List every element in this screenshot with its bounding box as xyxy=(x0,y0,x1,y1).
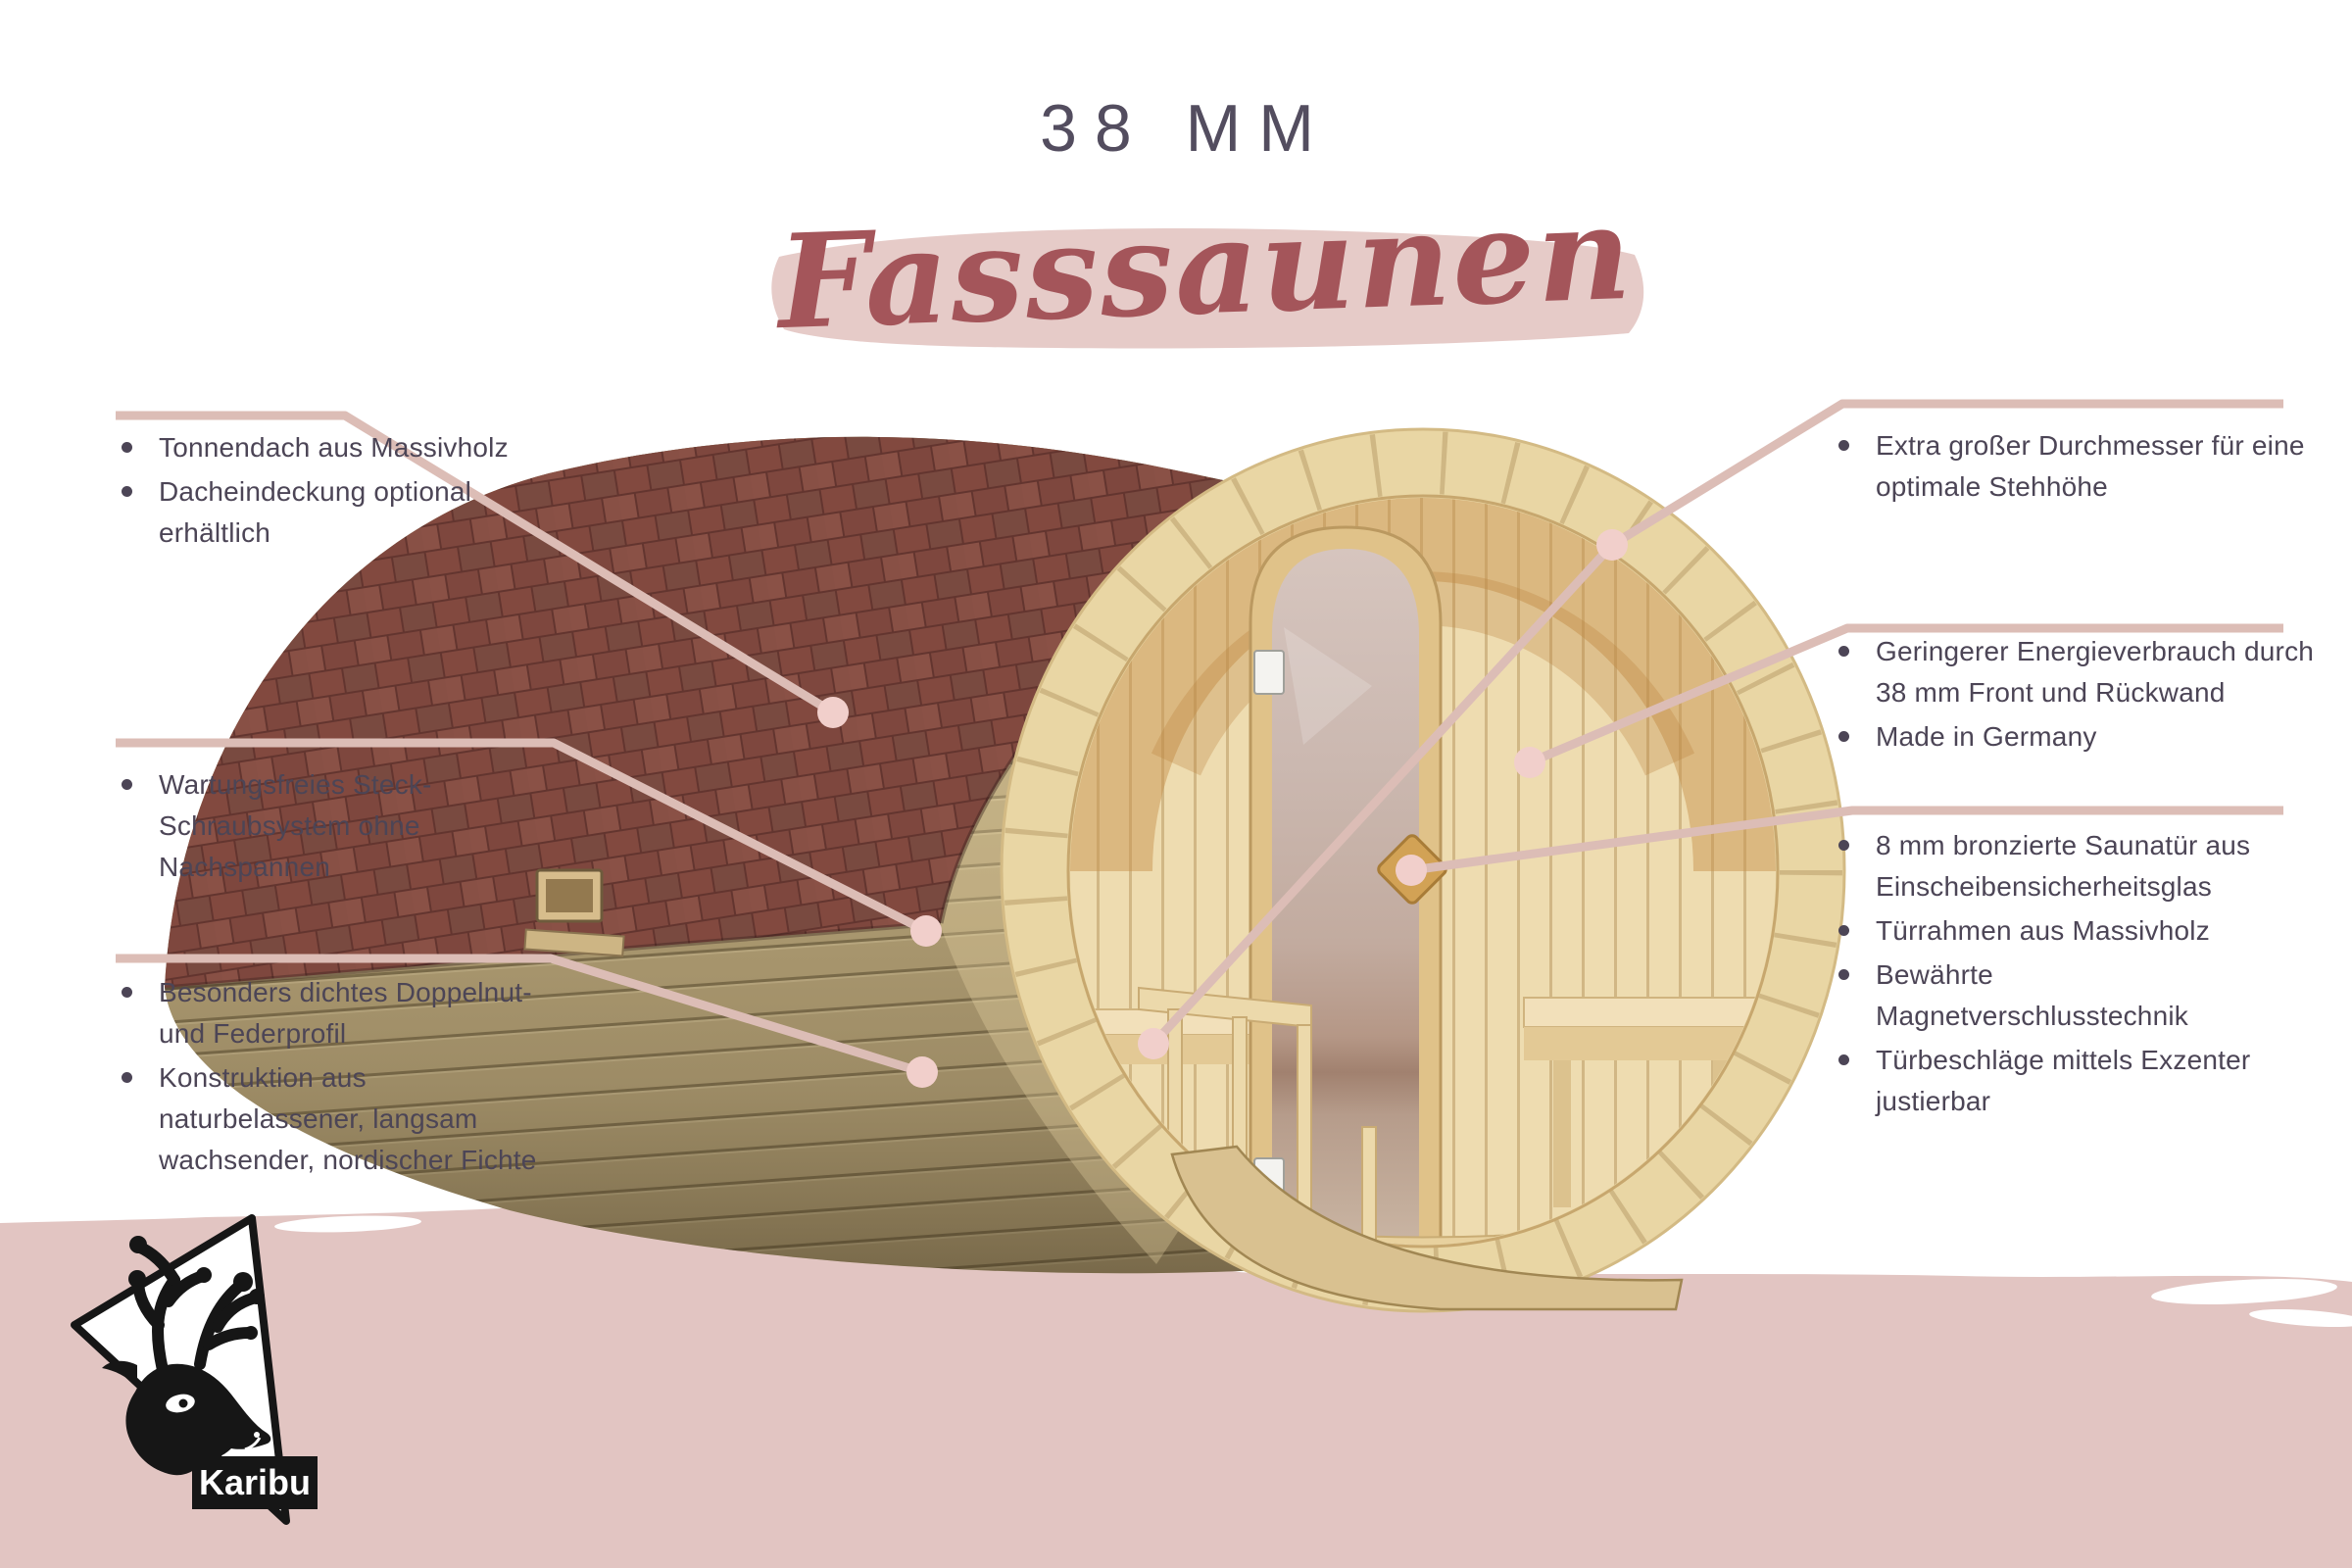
dot-side-wall xyxy=(910,915,942,947)
callout-list: Besonders dichtes Doppelnut- und Federpr… xyxy=(116,972,574,1181)
dot-rim-top xyxy=(1596,529,1628,561)
callout-left-screw-system: Wartungsfreies Steck-Schraubsystem ohne … xyxy=(116,764,537,888)
callout-right-diameter: Extra großer Durchmesser für eine optima… xyxy=(1833,425,2307,508)
dot-roof xyxy=(817,697,849,728)
callout-item: Türbeschläge mittels Exzenter justierbar xyxy=(1833,1040,2301,1122)
callout-right-door: 8 mm bronzierte Saunatür aus Einscheiben… xyxy=(1833,825,2301,1122)
callout-right-energy: Geringerer Energieverbrauch durch 38 mm … xyxy=(1833,631,2319,758)
callout-list: Wartungsfreies Steck-Schraubsystem ohne … xyxy=(116,764,537,888)
dot-lower-body xyxy=(906,1056,938,1088)
dot-back-wall xyxy=(1514,747,1545,778)
infographic-page: Karibu 38 MM Fasssaunen Tonnendach aus M… xyxy=(0,0,2352,1568)
callout-item: Türrahmen aus Massivholz xyxy=(1833,910,2301,952)
callout-item: Wartungsfreies Steck-Schraubsystem ohne … xyxy=(116,764,537,888)
door-hinge-top xyxy=(1254,651,1284,694)
callout-left-roof: Tonnendach aus Massivholz Dacheindeckung… xyxy=(116,427,537,554)
callout-list: Geringerer Energieverbrauch durch 38 mm … xyxy=(1833,631,2319,758)
callout-left-profile: Besonders dichtes Doppelnut- und Federpr… xyxy=(116,972,574,1181)
callout-item: 8 mm bronzierte Saunatür aus Einscheiben… xyxy=(1833,825,2301,907)
callout-list: Extra großer Durchmesser für eine optima… xyxy=(1833,425,2307,508)
callout-item: Bewährte Magnetverschlusstechnik xyxy=(1833,955,2301,1037)
callout-item: Geringerer Energieverbrauch durch 38 mm … xyxy=(1833,631,2319,713)
callout-item: Extra großer Durchmesser für eine optima… xyxy=(1833,425,2307,508)
dot-door-handle xyxy=(1396,855,1427,886)
callout-item: Tonnendach aus Massivholz xyxy=(116,427,537,468)
callout-item: Besonders dichtes Doppelnut- und Federpr… xyxy=(116,972,574,1054)
callout-item: Konstruktion aus naturbelassener, langsa… xyxy=(116,1057,574,1181)
logo-brand-text: Karibu xyxy=(199,1462,311,1502)
callout-item: Dacheindeckung optional erhältlich xyxy=(116,471,537,554)
dot-rim-bottom xyxy=(1138,1028,1169,1059)
callout-list: 8 mm bronzierte Saunatür aus Einscheiben… xyxy=(1833,825,2301,1122)
callout-list: Tonnendach aus Massivholz Dacheindeckung… xyxy=(116,427,537,554)
callout-item: Made in Germany xyxy=(1833,716,2319,758)
page-title: 38 MM xyxy=(0,90,2352,167)
